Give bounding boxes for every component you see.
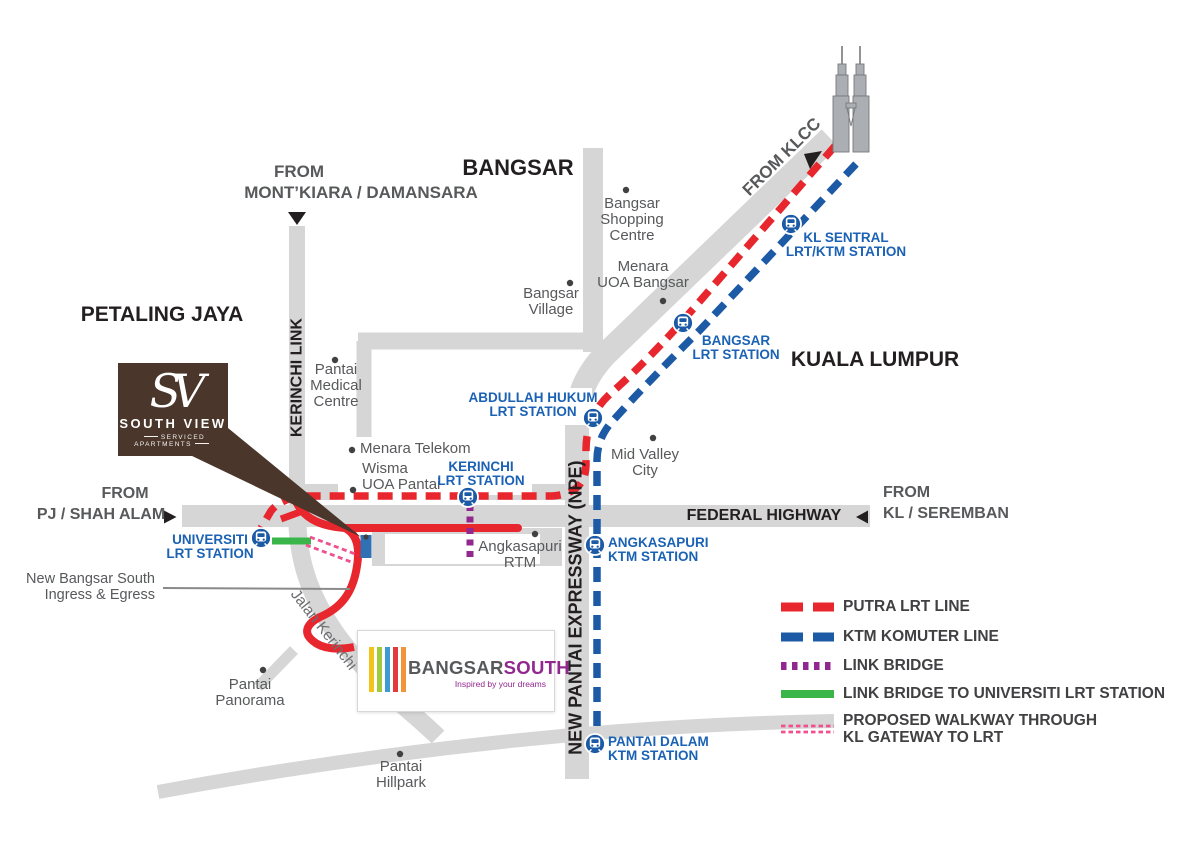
station-icon-angkasapuri xyxy=(585,535,605,555)
area-label-petaling-jaya: PETALING JAYA xyxy=(81,304,244,326)
bangsar-south-name: BANGSARSOUTH xyxy=(408,657,570,679)
station-label-universiti: UNIVERSITILRT STATION xyxy=(166,533,253,562)
place-bangsar-village: BangsarVillage xyxy=(523,286,579,318)
station-icon-kerinchi xyxy=(458,487,478,507)
place-menara-telekom: Menara Telekom xyxy=(360,441,471,457)
logo-bar xyxy=(385,647,390,692)
place-angkasapuri-rtm: AngkasapuriRTM xyxy=(478,539,561,571)
road-label-kerinchi-link: KERINCHI LINK xyxy=(288,298,305,458)
direction-from-kl-line2: KL / SEREMBAN xyxy=(883,505,1009,522)
annotation-ingress-egress: New Bangsar SouthIngress & Egress xyxy=(10,572,155,603)
rule-left xyxy=(144,436,158,437)
legend-item-putra-lrt: PUTRA LRT LINE xyxy=(780,598,970,615)
south-view-monogram: SV xyxy=(118,369,228,413)
place-wisma-uoa-pantai: WismaUOA Pantai xyxy=(362,461,440,493)
road-label-npe: NEW PANTAI EXPRESSWAY (NPE) xyxy=(566,443,585,773)
direction-from-pj-line2: PJ / SHAH ALAM xyxy=(37,506,165,523)
logo-bar xyxy=(393,647,398,692)
station-icon-universiti xyxy=(251,528,271,548)
south-view-logo: SV SOUTH VIEW SERVICED APARTMENTS xyxy=(118,363,228,456)
south-view-tagline: SERVICED APARTMENTS xyxy=(118,434,228,448)
bangsar-south-bars-icon xyxy=(369,647,406,692)
legend-item-link-bridge: LINK BRIDGE xyxy=(780,657,944,674)
road-label-federal-highway: FEDERAL HIGHWAY xyxy=(687,507,842,524)
logo-bar xyxy=(401,647,406,692)
legend-swatch-ktm xyxy=(780,631,834,643)
road-pantai-bottom xyxy=(158,721,834,792)
bangsar-south-tagline: Inspired by your dreams xyxy=(455,679,546,689)
area-label-bangsar: BANGSAR xyxy=(462,156,573,180)
direction-from-pj-line1: FROM xyxy=(101,485,148,502)
logo-bar xyxy=(369,647,374,692)
map-canvas: BANGSAR PETALING JAYA KUALA LUMPUR FROM … xyxy=(0,0,1200,857)
rule-right xyxy=(195,443,209,444)
south-view-name: SOUTH VIEW xyxy=(118,416,228,431)
place-menara-uoa-bangsar: MenaraUOA Bangsar xyxy=(597,259,689,291)
station-label-angkasapuri: ANGKASAPURIKTM STATION xyxy=(608,536,709,565)
proposed-walkway-line-1 xyxy=(310,537,358,555)
place-bangsar-shopping-centre: BangsarShoppingCentre xyxy=(600,196,663,244)
place-pantai-panorama: PantaiPanorama xyxy=(215,677,284,709)
station-label-kerinchi: KERINCHILRT STATION xyxy=(437,460,524,489)
direction-from-kl-line1: FROM xyxy=(883,484,930,501)
arrow-from-pj xyxy=(164,511,177,524)
place-pantai-medical-centre: PantaiMedicalCentre xyxy=(310,362,362,410)
station-icon-bangsar xyxy=(673,313,693,333)
place-mid-valley-city: Mid ValleyCity xyxy=(611,447,679,479)
station-label-pantai-dalam: PANTAI DALAMKTM STATION xyxy=(608,735,709,764)
bangsar-south-logo: BANGSARSOUTH Inspired by your dreams xyxy=(357,630,555,712)
legend-swatch-putra xyxy=(780,601,834,613)
station-label-bangsar: BANGSARLRT STATION xyxy=(692,334,779,363)
direction-from-montkiara-line1: FROM xyxy=(274,163,324,181)
legend-swatch-green xyxy=(780,688,834,700)
legend-item-proposed-walkway: PROPOSED WALKWAY THROUGHKL GATEWAY TO LR… xyxy=(780,712,1097,746)
station-label-abdullah-hukum: ABDULLAH HUKUMLRT STATION xyxy=(469,391,598,420)
place-pantai-hillpark: PantaiHillpark xyxy=(376,759,426,791)
legend-swatch-bridge xyxy=(780,660,834,672)
station-icon-pantai-dalam xyxy=(585,734,605,754)
ingress-pointer-line xyxy=(163,588,350,589)
station-label-kl-sentral: KL SENTRALLRT/KTM STATION xyxy=(786,231,906,260)
legend-item-link-bridge-universiti: LINK BRIDGE TO UNIVERSITI LRT STATION xyxy=(780,685,1165,702)
logo-bar xyxy=(377,647,382,692)
legend-swatch-pink xyxy=(780,722,834,736)
klcc-towers-icon xyxy=(833,46,869,152)
proposed-walkway-line-2 xyxy=(306,545,354,563)
arrow-from-montkiara xyxy=(288,212,306,225)
area-label-kuala-lumpur: KUALA LUMPUR xyxy=(791,349,959,371)
legend-item-ktm-komuter: KTM KOMUTER LINE xyxy=(780,628,999,645)
direction-from-montkiara-line2: MONT’KIARA / DAMANSARA xyxy=(244,184,478,202)
